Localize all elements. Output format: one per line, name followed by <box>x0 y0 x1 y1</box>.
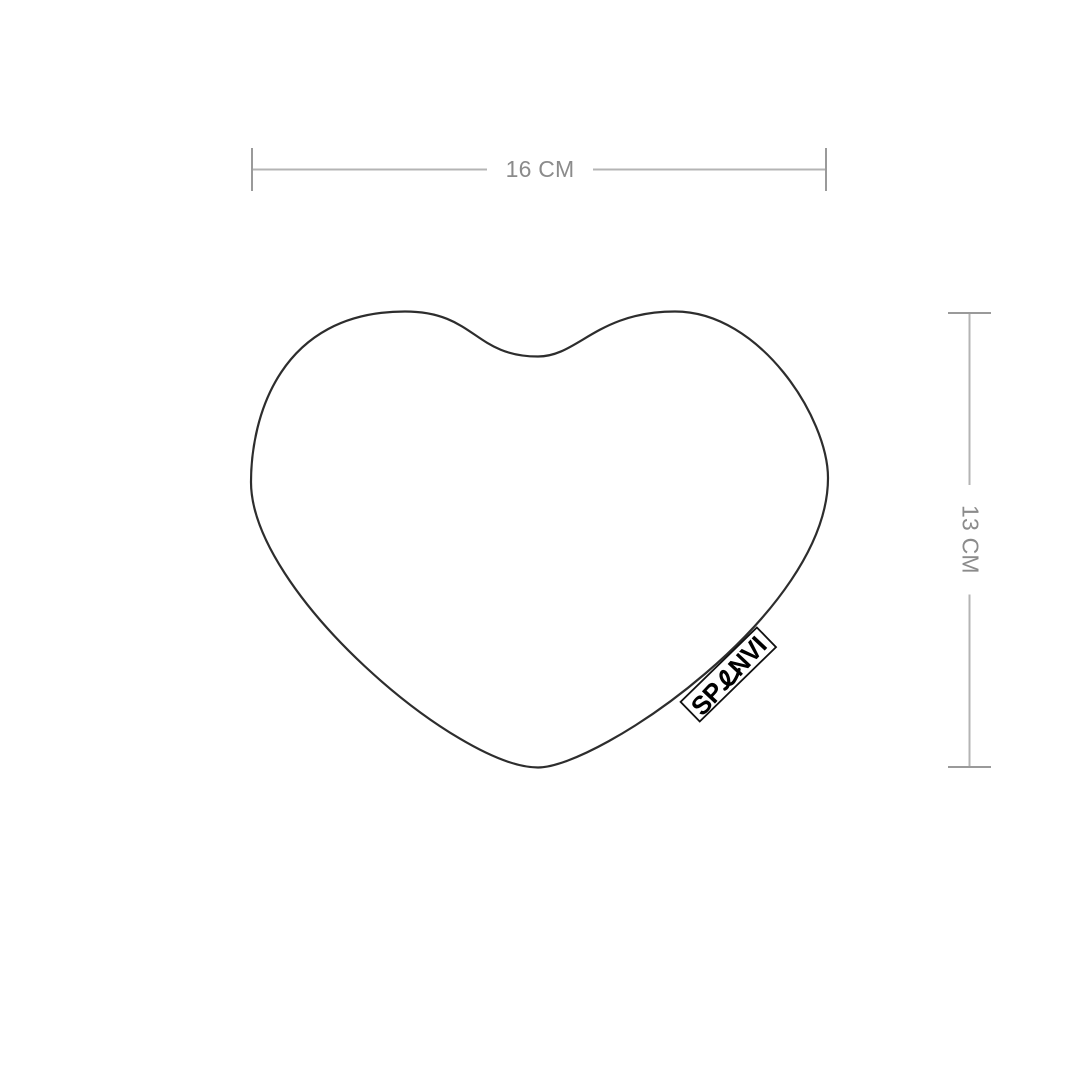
svg-text:16 CM: 16 CM <box>506 156 575 182</box>
svg-text:13 CM: 13 CM <box>958 505 984 574</box>
